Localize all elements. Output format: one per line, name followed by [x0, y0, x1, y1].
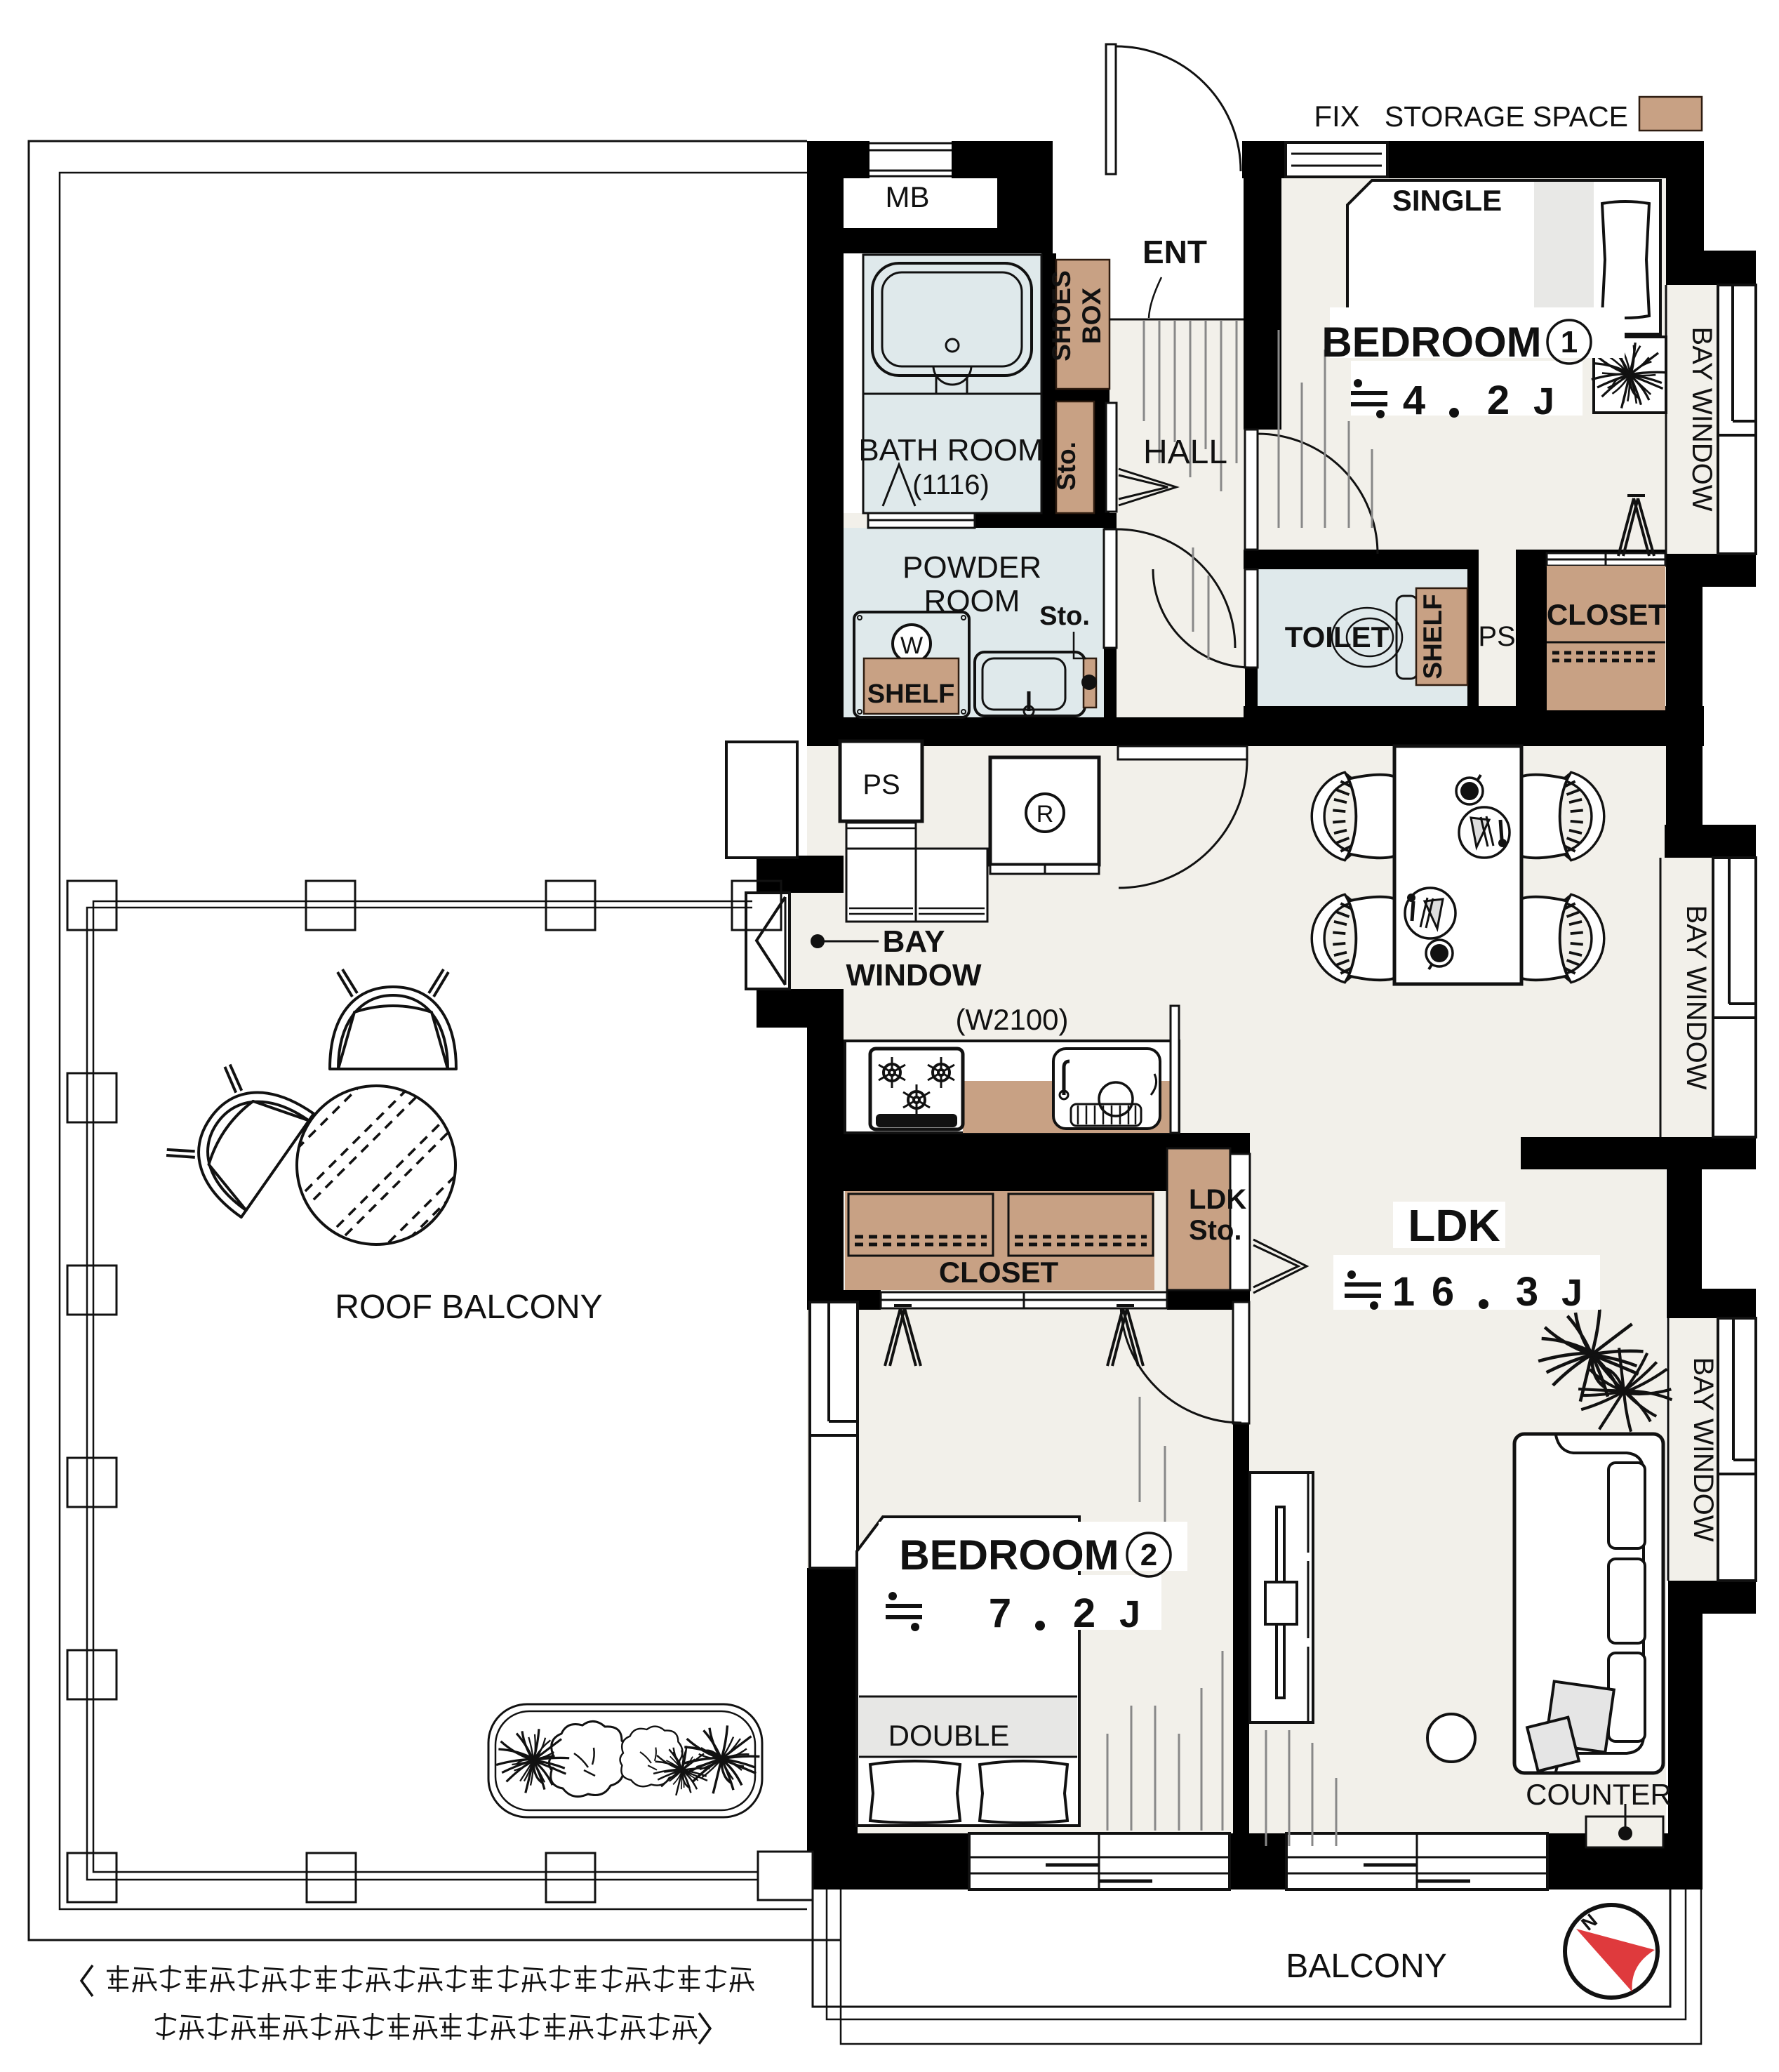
svg-text:ROOF BALCONY: ROOF BALCONY: [335, 1289, 602, 1326]
svg-text:POWDER: POWDER: [902, 550, 1041, 585]
svg-text:TOILET: TOILET: [1285, 620, 1390, 653]
svg-text:Sto.: Sto.: [1189, 1215, 1242, 1246]
svg-text:4: 4: [1403, 378, 1425, 423]
svg-text:PS: PS: [862, 769, 900, 800]
svg-text:SINGLE: SINGLE: [1392, 184, 1502, 217]
svg-text:MB: MB: [886, 180, 930, 213]
svg-text:3: 3: [1516, 1269, 1538, 1315]
svg-text:1: 1: [1561, 325, 1578, 359]
svg-text:BAY WINDOW: BAY WINDOW: [1686, 327, 1717, 512]
svg-text:WINDOW: WINDOW: [846, 958, 982, 992]
svg-text:BALCONY: BALCONY: [1286, 1948, 1446, 1985]
svg-text:J: J: [1561, 1272, 1583, 1314]
svg-text:BAY WINDOW: BAY WINDOW: [1681, 905, 1712, 1090]
svg-text:(W2100): (W2100): [955, 1003, 1068, 1036]
svg-text:BEDROOM: BEDROOM: [1321, 319, 1541, 366]
svg-text:STORAGE SPACE: STORAGE SPACE: [1385, 100, 1628, 133]
svg-text:BEDROOM: BEDROOM: [899, 1532, 1119, 1579]
svg-text:COUNTER: COUNTER: [1526, 1778, 1672, 1811]
svg-text:FIX: FIX: [1314, 100, 1359, 133]
svg-text:(1116): (1116): [912, 470, 990, 500]
svg-text:SHELF: SHELF: [1418, 594, 1447, 679]
svg-text:Sto.: Sto.: [1039, 602, 1090, 631]
svg-text:BOX: BOX: [1077, 288, 1106, 345]
svg-text:BAY: BAY: [883, 924, 945, 959]
svg-text:1: 1: [1392, 1269, 1415, 1315]
svg-text:2: 2: [1487, 378, 1510, 423]
svg-text:LDK: LDK: [1408, 1200, 1500, 1251]
svg-text:Sto.: Sto.: [1052, 441, 1081, 491]
svg-text:ROOM: ROOM: [924, 584, 1020, 618]
svg-text:CLOSET: CLOSET: [939, 1256, 1059, 1289]
svg-text:6: 6: [1432, 1269, 1454, 1315]
svg-text:HALL: HALL: [1143, 434, 1227, 471]
svg-text:DOUBLE: DOUBLE: [888, 1719, 1010, 1752]
svg-text:J: J: [1533, 380, 1554, 423]
svg-text:CLOSET: CLOSET: [1547, 598, 1667, 631]
svg-text:7: 7: [989, 1590, 1011, 1636]
svg-text:R: R: [1037, 801, 1054, 828]
svg-text:BAY WINDOW: BAY WINDOW: [1688, 1357, 1719, 1542]
svg-text:2: 2: [1140, 1538, 1157, 1572]
svg-text:SHOES: SHOES: [1047, 270, 1076, 361]
svg-text:PS: PS: [1478, 621, 1515, 652]
svg-text:J: J: [1119, 1593, 1140, 1635]
svg-text:SHELF: SHELF: [867, 679, 955, 709]
svg-text:LDK: LDK: [1189, 1184, 1246, 1215]
svg-text:ENT: ENT: [1142, 234, 1207, 270]
svg-text:W: W: [900, 632, 923, 659]
svg-text:BATH ROOM: BATH ROOM: [858, 433, 1043, 467]
svg-text:2: 2: [1073, 1590, 1095, 1636]
